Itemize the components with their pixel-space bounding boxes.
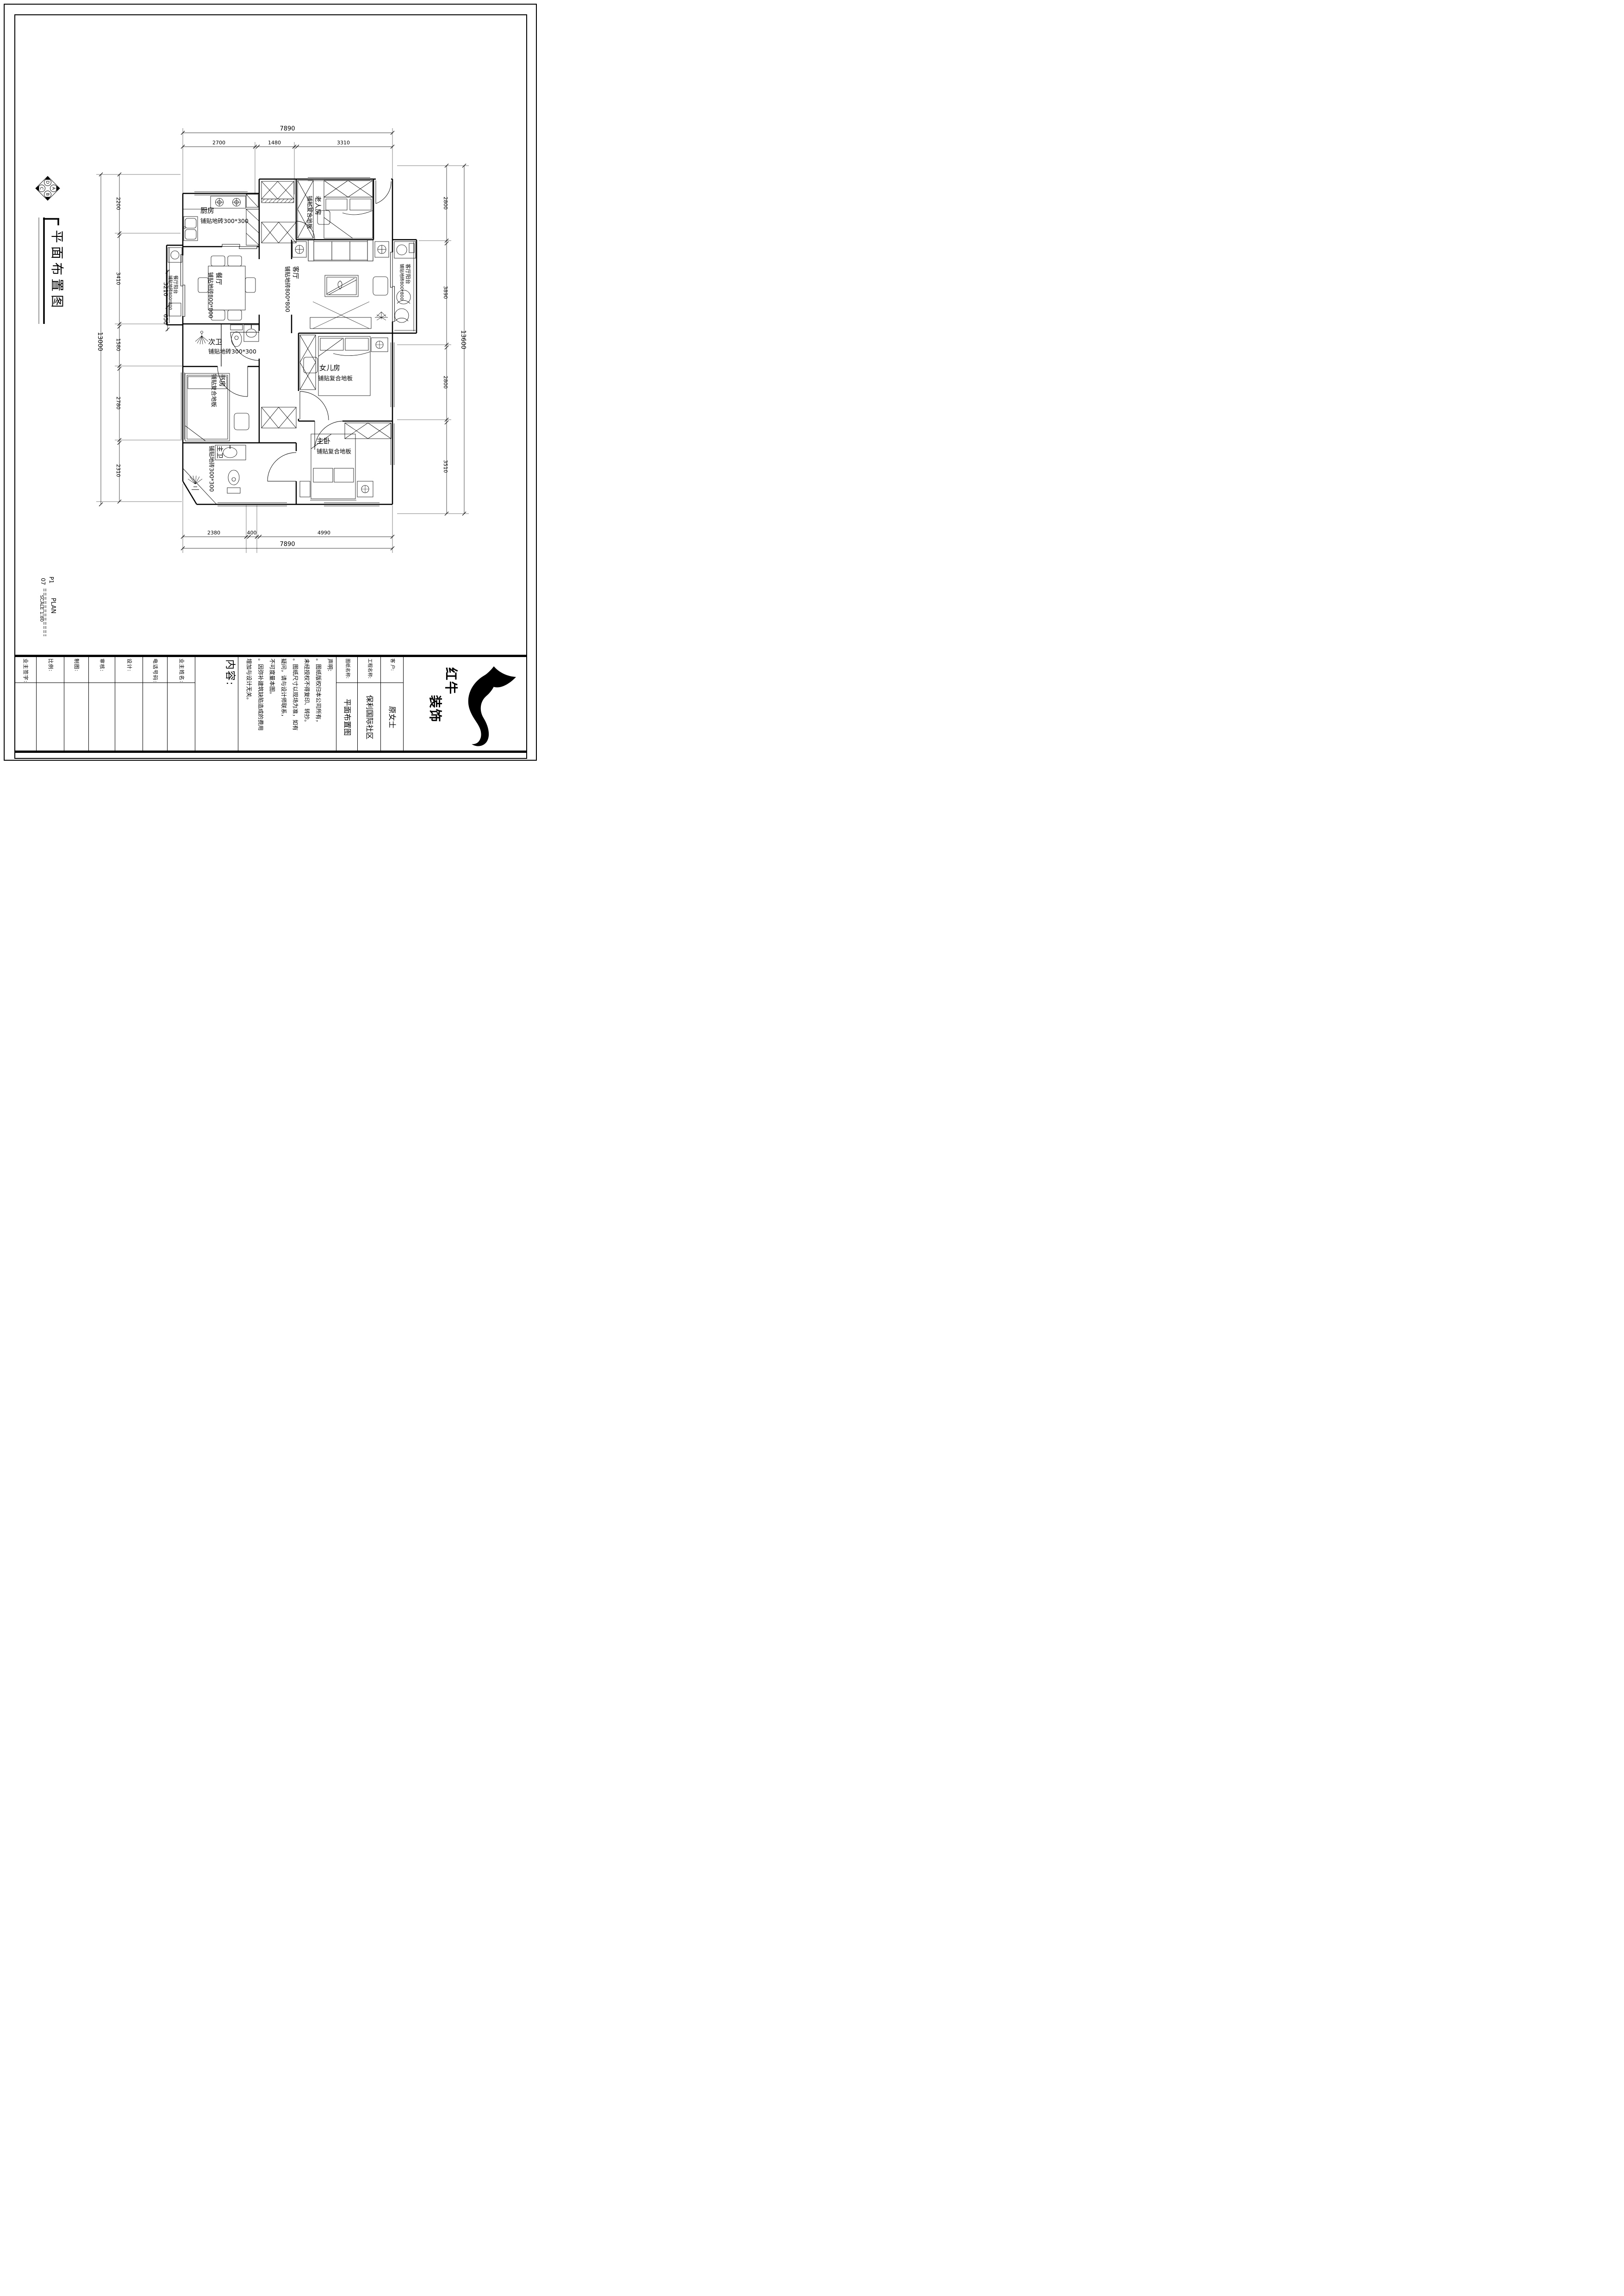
dim-top-1: 2700 [212,140,225,146]
dim-inner-2: 650 [162,314,169,325]
scale-label: 比例: [37,658,64,686]
compass-letter-left: C [39,187,44,190]
living-balcony-fixtures [394,242,416,323]
client-label: 客 户: [381,658,404,684]
draft-label-wrap: 制图: [64,658,89,686]
brand-text-wrap: 红牛 装饰 [426,667,459,741]
dim-left-1: 2200 [115,197,121,210]
label-study-spec: 铺贴复合地板 [211,374,218,407]
review-label: 审核: [89,658,115,686]
bull-logo [458,661,520,749]
label-living: 客厅 [292,266,299,279]
label-dining: 餐厅 [215,272,222,285]
project-value-wrap: 保利国际社区 [358,685,381,750]
dim-right-1: 2800 [442,197,448,210]
label-kitchen: 厨房 [200,206,214,215]
label-master-bed-spec: 铺贴复合地板 [317,448,352,455]
label-dining-balcony: 餐厅阳台 [173,275,179,294]
client-label-wrap: 客 户: [381,658,404,684]
label-dining-spec: 铺贴地砖800*800 [207,272,214,318]
label-daughter: 女儿房 [319,364,340,372]
label-master-bed: 主卧 [317,437,330,445]
dim-bottom-1: 2380 [207,530,220,536]
sheet-code: P1 [48,577,55,583]
dimension-texts: 7890 2700 1480 3310 2380 400 4990 7890 1… [96,125,467,548]
dim-left-4: 2780 [115,397,121,410]
room-labels: 厨房 铺贴地砖300*300 次卫 铺贴地砖300*300 女儿房 铺贴复合地板… [168,196,411,492]
title-block: 业主签字: 比例: 制图: 审核: 设计: 电话号码: 业主姓名: 内容: 声明… [14,655,527,753]
compass-letter-top: D [45,181,50,184]
content-label-wrap: 内容: [223,659,236,702]
drawing-name-label: 图纸名称: [336,658,358,684]
dining-set [198,256,255,320]
label-living-spec: 铺贴地砖800*800 [284,266,291,312]
dim-left-2: 3410 [115,272,121,285]
client-value-wrap: 原女士 [381,685,404,750]
review-label-wrap: 审核: [89,658,115,686]
label-second-bath: 次卫 [208,338,222,346]
plan-furniture [168,180,416,504]
daughter-room-furniture [300,335,388,396]
label-master-bath-spec: 铺贴地砖300*300 [208,446,215,492]
dim-bottom-3: 4990 [317,530,330,536]
label-elder-spec: 铺贴复合地板 [306,196,313,229]
dim-right-3: 2800 [442,376,448,389]
label-elder: 老人房 [314,196,321,215]
compass-letter-bottom: B [45,193,50,196]
washing-machine [168,248,182,262]
dim-bottom-total: 7890 [280,541,295,548]
living-room-furniture [292,240,389,329]
drawing-name-value-wrap: 平面布置图 [336,685,358,750]
project-value: 保利国际社区 [358,685,381,750]
drawing-title-marker: 平面布置图 [39,217,65,324]
phone-label: 电话号码: [143,658,168,686]
label-study: 书房 [218,374,225,387]
project-label: 工程名称: [358,658,381,684]
master-bed-furniture [300,423,391,500]
label-living-balcony: 客厅阳台 [405,264,411,284]
brand-text: 红牛 装饰 [426,667,459,741]
drawing-name-value: 平面布置图 [336,685,358,750]
compass-rose: D A B C [36,176,60,200]
compass-letter-right: A [51,187,56,190]
dim-left-total: 13000 [96,332,103,351]
project-label-wrap: 工程名称: [358,658,381,684]
label-daughter-spec: 铺贴复合地板 [318,375,353,382]
drawing-name-label-wrap: 图纸名称: [336,658,358,684]
dim-right-2: 3890 [442,286,448,299]
scale-label-wrap: 比例: [37,658,64,686]
owner-name-label-wrap: 业主姓名: [168,658,195,686]
dim-left-3: 1580 [115,338,121,351]
label-second-bath-spec: 铺贴地砖300*300 [208,348,256,355]
owner-name-label: 业主姓名: [168,658,195,686]
label-kitchen-spec: 铺贴地砖300*300 [200,217,249,224]
sheet-number-block: P1 07 PLAN SCALE 1:80 [39,577,56,636]
scale-word: SCALE 1:80 [39,595,44,622]
dim-top-2: 1480 [268,140,281,146]
plan-doors [181,180,395,481]
phone-label-wrap: 电话号码: [143,658,168,686]
dim-left-5: 2310 [115,464,121,477]
label-master-bath: 主卫 [216,446,223,459]
second-bath-fixtures [195,324,259,366]
label-living-balcony-spec: 铺贴地砖800*800 [399,264,404,300]
declaration-wrap: 声明: 。图纸版权归本公司所有， 未经授权不得复印、转抄。 。图纸尺寸以现场为准… [239,658,336,749]
draft-label: 制图: [64,658,89,686]
sheet-no: 07 [40,578,46,585]
dim-right-4: 3510 [442,460,448,473]
dim-right-total: 13600 [460,330,467,349]
design-label-wrap: 设计: [115,658,143,686]
floor-plan-drawing: D A B C 平面布置图 P1 07 PLAN SCALE 1:80 [0,0,541,655]
declaration-text: 声明: 。图纸版权归本公司所有， 未经授权不得复印、转抄。 。图纸尺寸以现场为准… [239,658,336,749]
content-label: 内容: [223,659,236,702]
floor-plan-sheet: D A B C 平面布置图 P1 07 PLAN SCALE 1:80 [0,0,541,765]
plan-word: PLAN [50,598,56,614]
owner-sign-label-wrap: 业主签字: [14,658,37,686]
dim-top-3: 3310 [337,140,350,146]
dim-bottom-2: 400 [247,530,257,536]
client-value: 原女士 [381,685,404,750]
dim-top-total: 7890 [280,125,295,132]
label-dining-balcony-spec: 铺贴地砖800*800 [168,275,173,310]
dimension-lines [96,128,469,553]
owner-sign-label: 业主签字: [14,658,37,686]
drawing-title-text: 平面布置图 [50,230,65,311]
design-label: 设计: [115,658,143,686]
